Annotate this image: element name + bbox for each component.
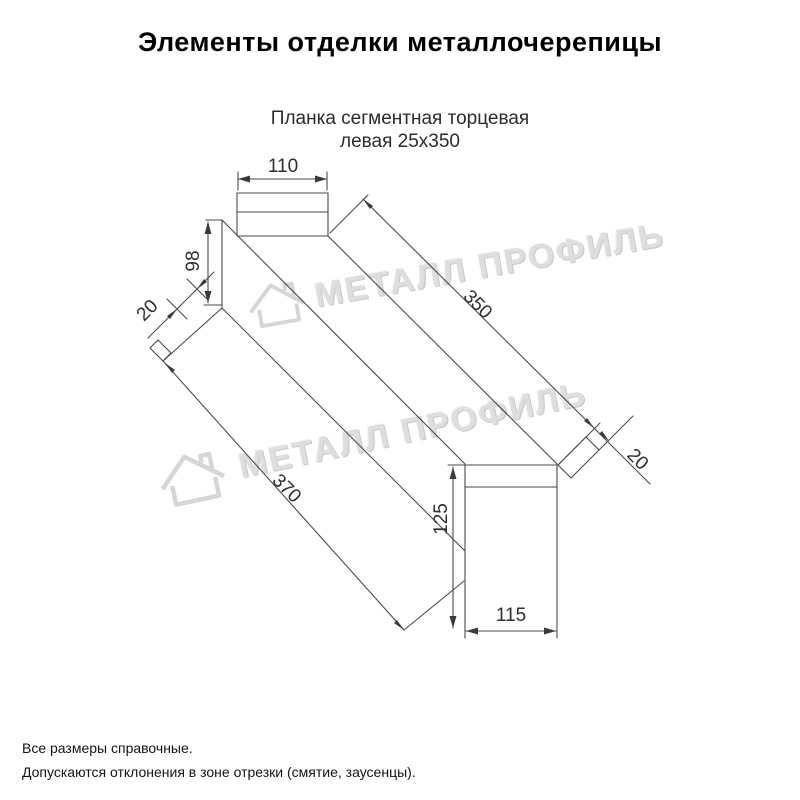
dim-115-graphics bbox=[466, 628, 556, 635]
side-face bbox=[150, 220, 222, 361]
footer-note-1: Все размеры справочные. bbox=[22, 740, 193, 756]
top-face bbox=[237, 193, 328, 236]
dim-label-top-width: 110 bbox=[268, 156, 298, 178]
left-hem-fold bbox=[150, 340, 171, 361]
dim-125-graphics bbox=[448, 465, 465, 628]
dim-label-side-height: 98 bbox=[183, 250, 205, 271]
trim-profile-drawing bbox=[0, 0, 800, 800]
footer-note-2: Допускаются отклонения в зоне отрезки (с… bbox=[22, 764, 416, 780]
dim-98-graphics bbox=[204, 220, 222, 305]
dim-350-graphics bbox=[330, 195, 594, 428]
end-hem-fold bbox=[558, 437, 599, 478]
technical-drawing-page: МЕТАЛЛ ПРОФИЛЬ МЕТАЛЛ ПРОФИЛЬ Элементы о… bbox=[0, 0, 800, 800]
dim-label-end-height: 125 bbox=[431, 503, 453, 535]
length-edges bbox=[222, 220, 557, 630]
dim-label-end-width: 115 bbox=[496, 605, 526, 627]
